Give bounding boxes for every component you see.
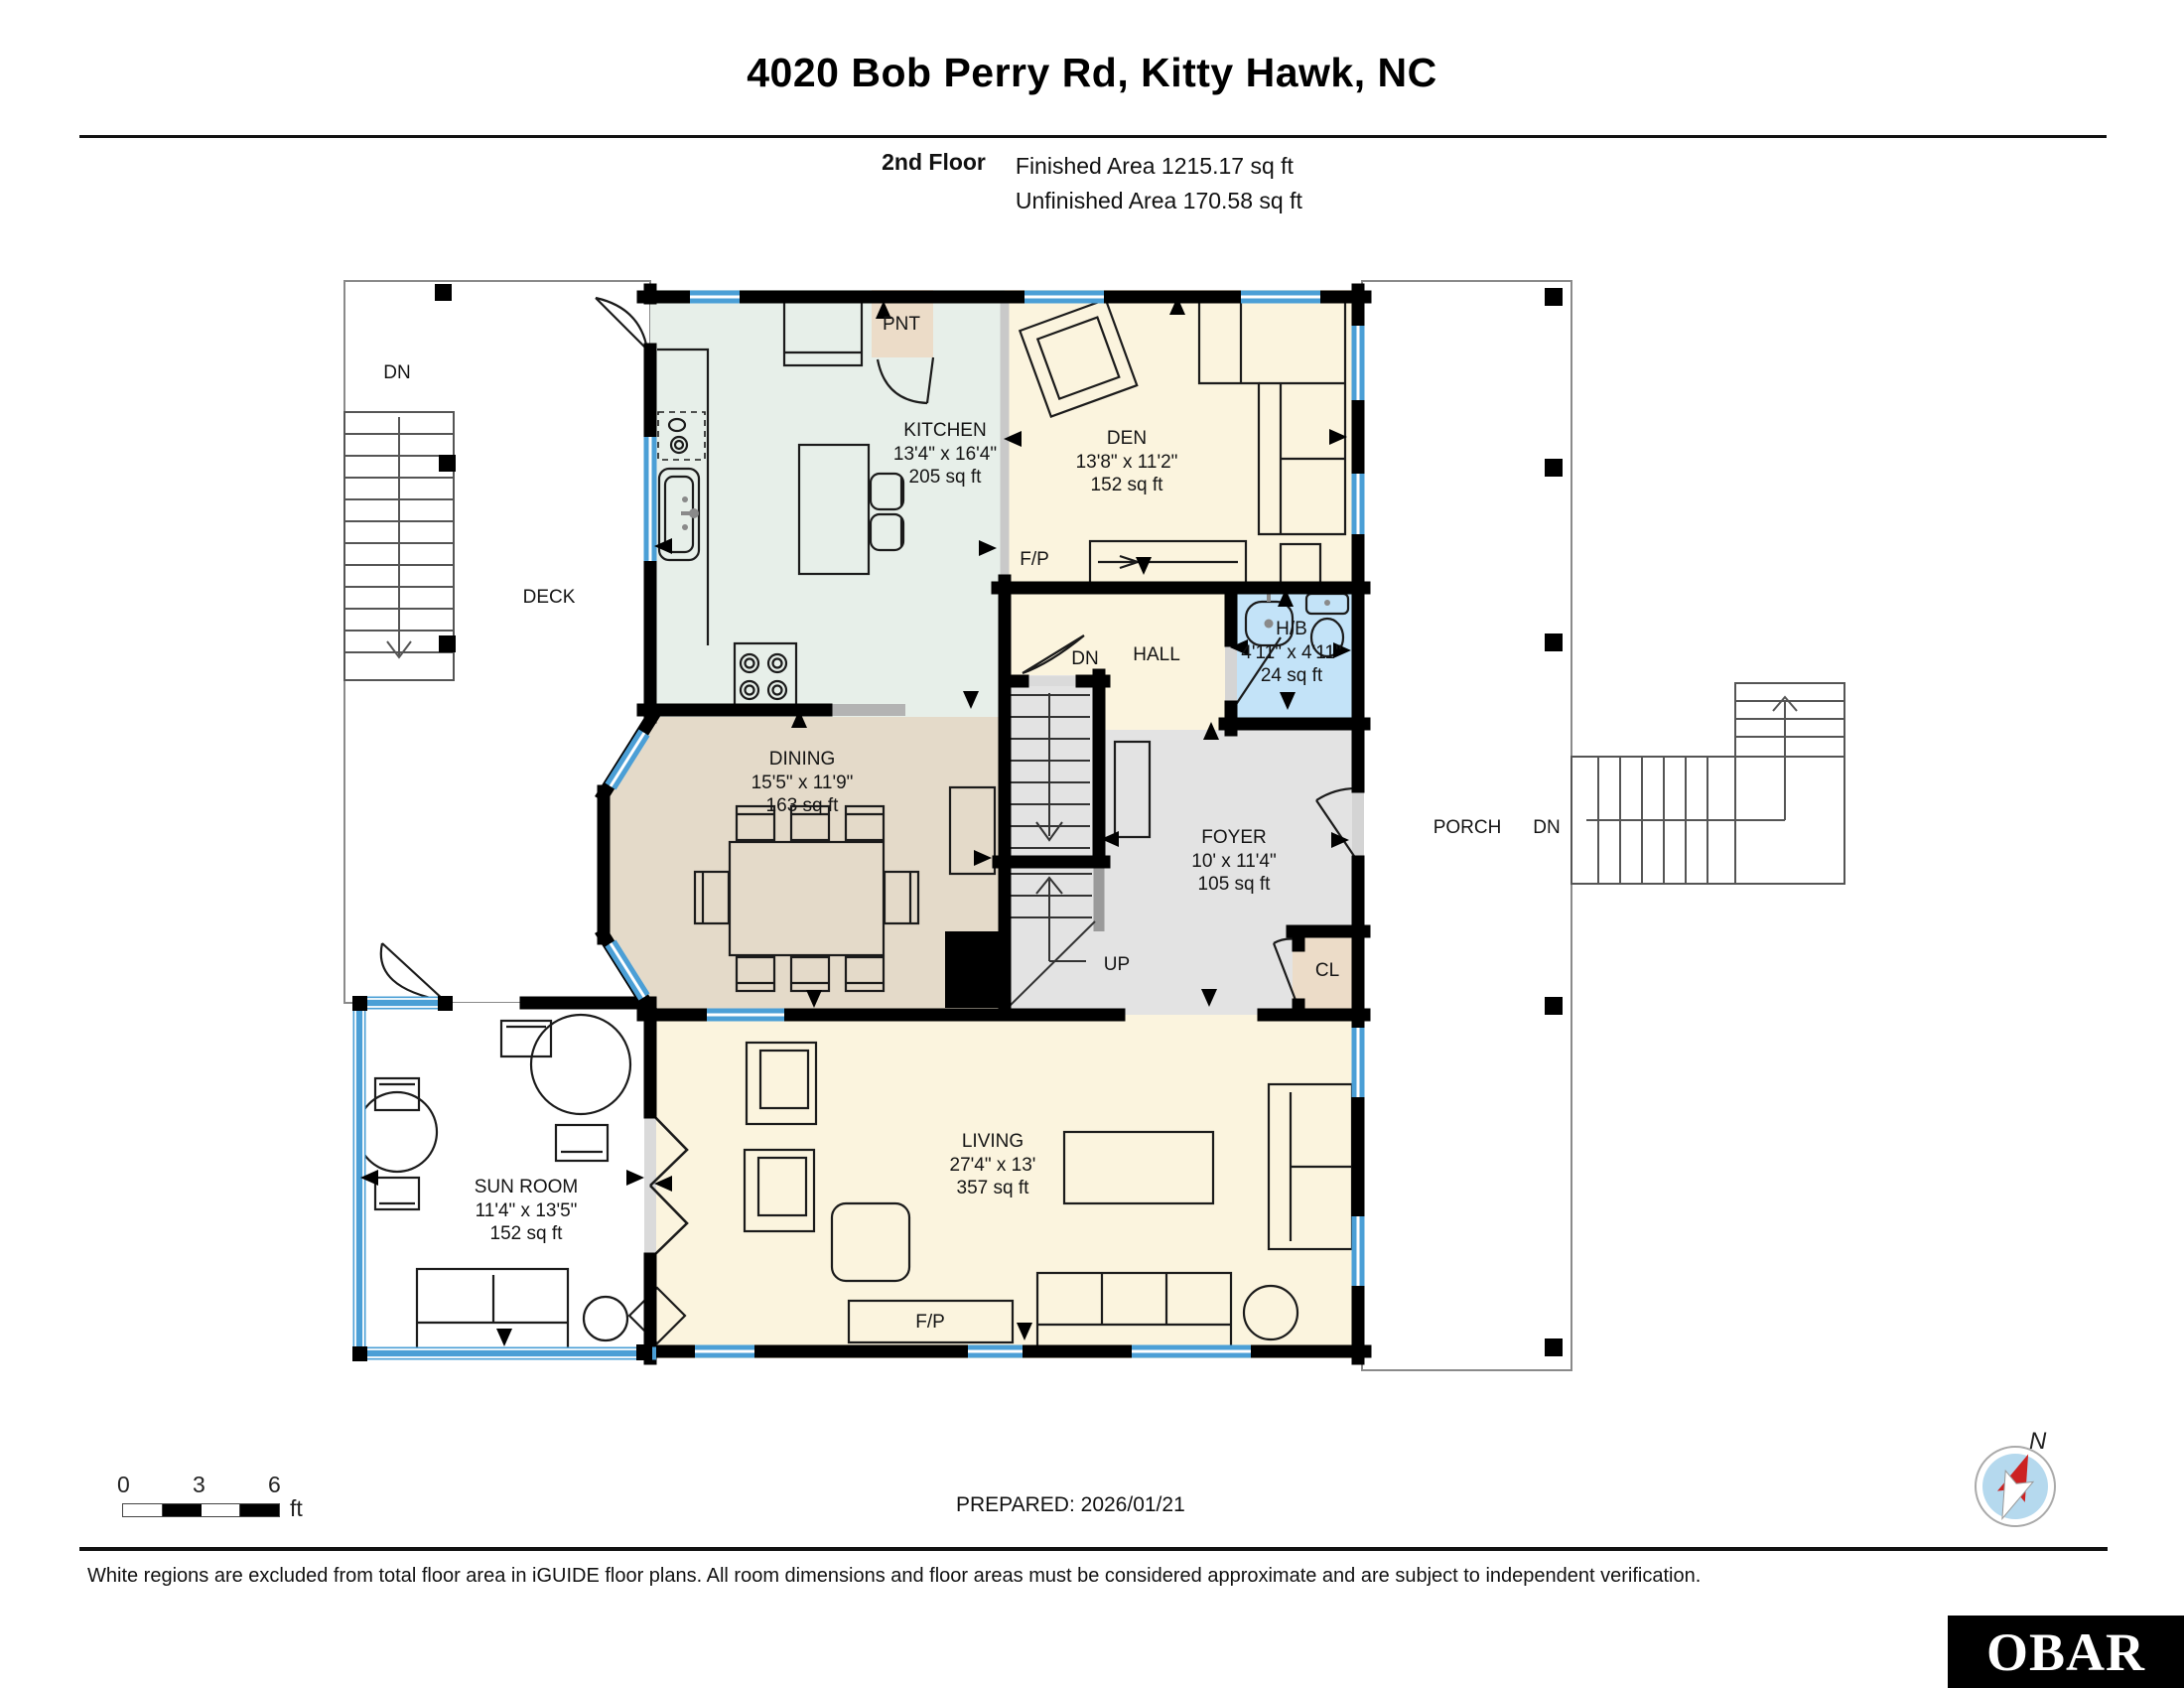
scale-bar [122, 1503, 280, 1517]
room-area: 152 sq ft [1076, 474, 1178, 497]
room-name: H/B [1241, 618, 1341, 641]
room-label-half-bath: H/B 4'11" x 4'11" 24 sq ft [1241, 618, 1341, 688]
room-dims: 11'4" x 13'5" [475, 1199, 579, 1223]
scale-unit: ft [290, 1495, 303, 1522]
compass-icon [1976, 1447, 2055, 1526]
room-dims: 13'4" x 16'4" [893, 443, 997, 467]
room-name: DEN [1076, 427, 1178, 451]
chimney [945, 931, 1001, 1008]
porch-label: PORCH [1433, 816, 1502, 840]
closet-label: CL [1315, 959, 1339, 983]
room-area: 163 sq ft [751, 794, 854, 818]
room-area: 205 sq ft [893, 466, 997, 490]
room-label-foyer: FOYER 10' x 11'4" 105 sq ft [1191, 826, 1276, 897]
stairs-up-label: UP [1104, 953, 1130, 977]
scale-tick-6: 6 [268, 1472, 281, 1498]
room-label-den: DEN 13'8" x 11'2" 152 sq ft [1076, 427, 1178, 497]
room-name: DINING [751, 748, 854, 772]
disclaimer-text: White regions are excluded from total fl… [87, 1565, 1701, 1588]
prepared-date: PREPARED: 2026/01/21 [956, 1493, 1185, 1517]
floor-plan-page: 4020 Bob Perry Rd, Kitty Hawk, NC 2nd Fl… [0, 0, 2184, 1688]
porch-dn-label: DN [1533, 816, 1560, 840]
room-dims: 4'11" x 4'11" [1241, 641, 1341, 665]
room-dims: 15'5" x 11'9" [751, 772, 854, 795]
scale-tick-3: 3 [193, 1472, 205, 1498]
room-area: 24 sq ft [1241, 664, 1341, 688]
room-area: 105 sq ft [1191, 873, 1276, 897]
deck-label: DECK [523, 586, 576, 610]
living-fireplace-label: F/P [915, 1311, 945, 1335]
room-dims: 13'8" x 11'2" [1076, 451, 1178, 475]
hall-label: HALL [1133, 643, 1180, 667]
room-area: 152 sq ft [475, 1222, 579, 1246]
room-name: KITCHEN [893, 419, 997, 443]
obar-logo: OBAR [1948, 1616, 2184, 1688]
room-label-kitchen: KITCHEN 13'4" x 16'4" 205 sq ft [893, 419, 997, 490]
room-area: 357 sq ft [950, 1177, 1036, 1200]
footer-divider [79, 1547, 2108, 1551]
room-dims: 27'4" x 13' [950, 1154, 1036, 1178]
scale-tick-0: 0 [117, 1472, 130, 1498]
room-name: LIVING [950, 1130, 1036, 1154]
deck-dn-label: DN [383, 361, 410, 385]
den-fireplace-label: F/P [1020, 548, 1049, 572]
floor-plan-drawing [0, 0, 2184, 1688]
room-name: FOYER [1191, 826, 1276, 850]
room-label-dining: DINING 15'5" x 11'9" 163 sq ft [751, 748, 854, 818]
room-name: SUN ROOM [475, 1176, 579, 1199]
exterior-stairs [1571, 683, 1844, 884]
hall-dn-label: DN [1071, 647, 1098, 671]
compass-north-label: N [2029, 1428, 2046, 1456]
room-dims: 10' x 11'4" [1191, 850, 1276, 874]
pantry-label: PNT [883, 313, 920, 337]
room-label-living: LIVING 27'4" x 13' 357 sq ft [950, 1130, 1036, 1200]
room-label-sun-room: SUN ROOM 11'4" x 13'5" 152 sq ft [475, 1176, 579, 1246]
